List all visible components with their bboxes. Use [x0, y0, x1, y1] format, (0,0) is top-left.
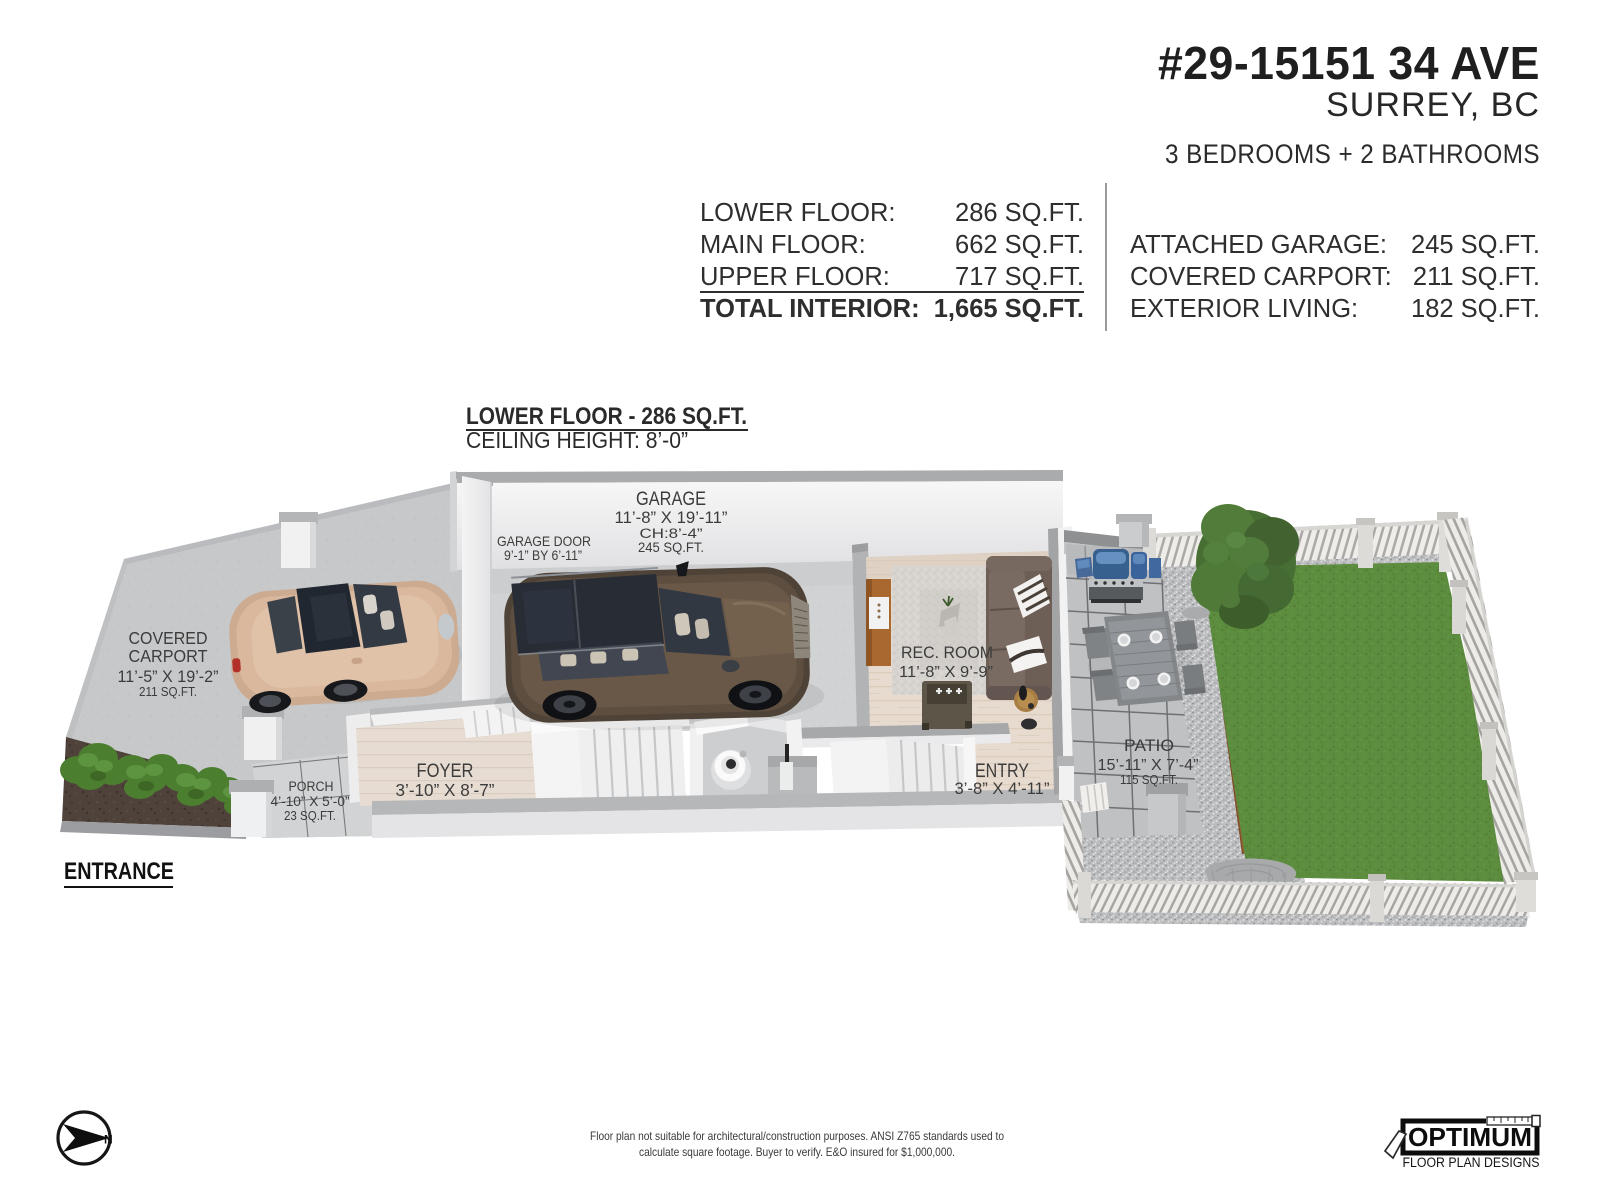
svg-text:Floor plan not suitable for ar: Floor plan not suitable for architectura…: [590, 1129, 1004, 1143]
svg-text:SURREY, BC: SURREY, BC: [1326, 86, 1540, 124]
svg-text:calculate square footage. Buye: calculate square footage. Buyer to verif…: [639, 1145, 955, 1159]
svg-text:1,665 SQ.FT.: 1,665 SQ.FT.: [934, 295, 1084, 323]
svg-text:COVERED: COVERED: [129, 628, 208, 648]
svg-text:GARAGE DOOR: GARAGE DOOR: [497, 533, 591, 549]
svg-text:LOWER FLOOR - 286 SQ.FT.: LOWER FLOOR - 286 SQ.FT.: [466, 403, 747, 430]
svg-text:LOWER FLOOR:: LOWER FLOOR:: [700, 199, 896, 227]
svg-text:3 BEDROOMS + 2 BATHROOMS: 3 BEDROOMS + 2 BATHROOMS: [1165, 139, 1540, 169]
svg-text:CEILING HEIGHT: 8’-0”: CEILING HEIGHT: 8’-0”: [466, 427, 688, 453]
svg-text:211 SQ.FT.: 211 SQ.FT.: [139, 684, 197, 699]
svg-text:3’-10” X 8’-7”: 3’-10” X 8’-7”: [396, 780, 495, 800]
svg-text:182 SQ.FT.: 182 SQ.FT.: [1411, 295, 1540, 323]
svg-text:11’-8” X 9’-9”: 11’-8” X 9’-9”: [899, 664, 993, 681]
svg-text:245 SQ.FT.: 245 SQ.FT.: [638, 540, 704, 555]
svg-text:N: N: [104, 1133, 113, 1147]
svg-text:FOYER: FOYER: [417, 761, 474, 782]
svg-text:TOTAL INTERIOR:: TOTAL INTERIOR:: [700, 295, 920, 323]
svg-text:ATTACHED GARAGE:: ATTACHED GARAGE:: [1130, 231, 1387, 259]
svg-text:115 SQ.FT.: 115 SQ.FT.: [1120, 773, 1178, 787]
svg-text:23 SQ.FT.: 23 SQ.FT.: [284, 809, 336, 823]
svg-text:3’-8” X 4’-11”: 3’-8” X 4’-11”: [955, 780, 1050, 798]
svg-text:MAIN FLOOR:: MAIN FLOOR:: [700, 231, 866, 259]
svg-text:15’-11” X 7’-4”: 15’-11” X 7’-4”: [1098, 757, 1199, 774]
svg-text:FLOOR PLAN DESIGNS: FLOOR PLAN DESIGNS: [1403, 1155, 1540, 1170]
svg-text:COVERED CARPORT:: COVERED CARPORT:: [1130, 263, 1392, 291]
svg-text:CARPORT: CARPORT: [129, 646, 208, 666]
svg-text:PORCH: PORCH: [289, 779, 334, 794]
svg-text:662 SQ.FT.: 662 SQ.FT.: [955, 231, 1084, 259]
svg-text:ENTRY: ENTRY: [975, 761, 1029, 782]
svg-text:CH:8’-4”: CH:8’-4”: [640, 526, 703, 541]
svg-text:REC. ROOM: REC. ROOM: [901, 644, 993, 662]
svg-text:UPPER FLOOR:: UPPER FLOOR:: [700, 263, 890, 291]
svg-text:OPTIMUM: OPTIMUM: [1408, 1122, 1532, 1152]
svg-text:245 SQ.FT.: 245 SQ.FT.: [1411, 231, 1540, 259]
svg-text:EXTERIOR LIVING:: EXTERIOR LIVING:: [1130, 295, 1358, 323]
svg-text:717 SQ.FT.: 717 SQ.FT.: [955, 263, 1084, 291]
svg-text:211 SQ.FT.: 211 SQ.FT.: [1413, 263, 1540, 291]
svg-text:9’-1” BY 6’-11”: 9’-1” BY 6’-11”: [504, 548, 582, 563]
svg-text:PATIO: PATIO: [1124, 737, 1174, 755]
svg-text:GARAGE: GARAGE: [636, 489, 706, 510]
svg-text:#29-15151 34 AVE: #29-15151 34 AVE: [1158, 37, 1540, 89]
svg-text:4’-10” X 5’-0”: 4’-10” X 5’-0”: [271, 794, 350, 809]
svg-text:11’-8” X 19’-11”: 11’-8” X 19’-11”: [615, 509, 728, 527]
svg-text:286 SQ.FT.: 286 SQ.FT.: [955, 199, 1084, 227]
svg-text:ENTRANCE: ENTRANCE: [64, 858, 174, 885]
